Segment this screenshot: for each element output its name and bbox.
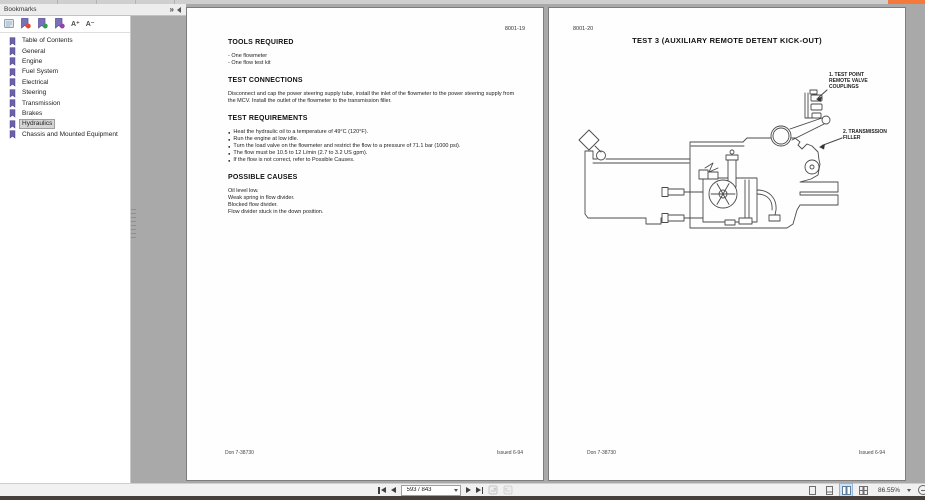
expand-bookmarks-purple-icon[interactable] bbox=[54, 18, 65, 29]
last-page-button[interactable] bbox=[476, 487, 484, 494]
zoom-level: 86.55% bbox=[878, 487, 900, 494]
callout-transmission-filler: 2. TRANSMISSION FILLER bbox=[843, 129, 887, 141]
bookmark-label: Electrical bbox=[20, 79, 50, 87]
bookmark-label: Transmission bbox=[20, 100, 62, 108]
text-line: Blocked flow divider. bbox=[228, 202, 515, 209]
document-area: 8001-19 TOOLS REQUIRED - One flowmeter -… bbox=[130, 4, 925, 483]
bookmark-item-steering[interactable]: Steering bbox=[0, 88, 130, 98]
bookmark-label-selected: Hydraulics bbox=[20, 120, 54, 128]
footer-issue-date: Issued 6-94 bbox=[859, 450, 885, 456]
pdf-reader-window: 8001-19 TOOLS REQUIRED - One flowmeter -… bbox=[0, 0, 925, 500]
document-page-left[interactable]: 8001-19 TOOLS REQUIRED - One flowmeter -… bbox=[186, 7, 544, 481]
bookmark-icon bbox=[9, 120, 16, 129]
tab-divider bbox=[96, 0, 97, 4]
bullet-line: Heat the hydraulic oil to a temperature … bbox=[228, 129, 515, 136]
transmission-diagram bbox=[549, 68, 905, 268]
text-line: Flow divider stuck in the down position. bbox=[228, 209, 515, 216]
bullet-line: Run the engine at low idle. bbox=[228, 136, 515, 143]
section-heading: TEST CONNECTIONS bbox=[228, 77, 515, 85]
zoom-out-icon[interactable] bbox=[918, 485, 925, 495]
page-number: 8001-19 bbox=[505, 26, 525, 32]
text-line: Weak spring in flow divider. bbox=[228, 195, 515, 202]
bookmarks-panel-header: Bookmarks » bbox=[0, 4, 186, 16]
callout-line: COUPLINGS bbox=[829, 84, 868, 90]
page-number-box bbox=[401, 485, 461, 496]
bookmark-item-electrical[interactable]: Electrical bbox=[0, 78, 130, 88]
top-accent-bar bbox=[888, 0, 925, 4]
expand-bookmarks-red-icon[interactable] bbox=[20, 18, 31, 29]
page-title: TEST 3 (AUXILIARY REMOTE DETENT KICK-OUT… bbox=[549, 36, 905, 45]
paragraph: Disconnect and cap the power steering su… bbox=[228, 91, 515, 105]
section-heading: TOOLS REQUIRED bbox=[228, 39, 515, 47]
section-heading: TEST REQUIREMENTS bbox=[228, 115, 515, 123]
bookmark-icon bbox=[9, 89, 16, 98]
view-controls: 86.55% bbox=[805, 484, 925, 496]
bookmark-label: Chassis and Mounted Equipment bbox=[20, 131, 120, 139]
two-page-continuous-view-icon[interactable] bbox=[856, 483, 870, 497]
window-top-strip bbox=[0, 0, 925, 4]
bookmark-item-transmission[interactable]: Transmission bbox=[0, 98, 130, 108]
bookmark-list: Table of Contents General Engine Fuel Sy… bbox=[0, 33, 130, 140]
bookmark-icon bbox=[9, 109, 16, 118]
bookmark-icon bbox=[9, 57, 16, 66]
text-line: Oil level low. bbox=[228, 188, 515, 195]
bookmark-item-hydraulics[interactable]: Hydraulics bbox=[0, 119, 130, 129]
bookmark-icon bbox=[9, 47, 16, 56]
continuous-view-icon[interactable] bbox=[822, 483, 836, 497]
bookmark-icon bbox=[9, 37, 16, 46]
bookmark-icon bbox=[9, 99, 16, 108]
bookmark-item-general[interactable]: General bbox=[0, 46, 130, 56]
text-line: - One flowmeter bbox=[228, 53, 515, 60]
bookmark-label: General bbox=[20, 48, 47, 56]
two-page-view-icon[interactable] bbox=[839, 483, 853, 497]
tab-divider bbox=[135, 0, 136, 4]
page-number-input[interactable] bbox=[402, 486, 453, 495]
panel-options-icon[interactable] bbox=[4, 19, 14, 28]
document-page-right[interactable]: 8001-20 TEST 3 (AUXILIARY REMOTE DETENT … bbox=[548, 7, 906, 481]
bookmark-icon bbox=[9, 78, 16, 87]
panel-collapse-icon[interactable] bbox=[177, 7, 181, 13]
taskbar-edge bbox=[0, 496, 925, 500]
panel-title: Bookmarks bbox=[4, 6, 170, 13]
zoom-dropdown-icon[interactable] bbox=[907, 489, 911, 492]
next-page-button[interactable] bbox=[466, 487, 471, 493]
bookmark-label: Fuel System bbox=[20, 68, 60, 76]
bookmark-item-brakes[interactable]: Brakes bbox=[0, 109, 130, 119]
bookmark-item-chassis-and-mounted-equipment[interactable]: Chassis and Mounted Equipment bbox=[0, 130, 130, 140]
bookmark-label: Table of Contents bbox=[20, 37, 75, 45]
page-body: TOOLS REQUIRED - One flowmeter - One flo… bbox=[228, 39, 515, 216]
panel-menu-icon[interactable]: » bbox=[170, 7, 174, 13]
tab-divider bbox=[57, 0, 58, 4]
callout-line: FILLER bbox=[843, 135, 887, 141]
section-heading: POSSIBLE CAUSES bbox=[228, 174, 515, 182]
bullet-line: Turn the load valve on the flowmeter and… bbox=[228, 143, 515, 150]
page-navigation bbox=[378, 484, 513, 496]
bookmarks-panel: A⁺ A⁻ Table of Contents General Engine F… bbox=[0, 15, 131, 483]
text-line: - One flow test kit bbox=[228, 60, 515, 67]
footer-issue-date: Issued 6-94 bbox=[497, 450, 523, 456]
page-dropdown-icon[interactable] bbox=[454, 489, 458, 492]
previous-page-button[interactable] bbox=[391, 487, 396, 493]
first-page-button[interactable] bbox=[378, 487, 386, 494]
bullet-line: The flow must be 10.5 to 12 L/min (2.7 t… bbox=[228, 150, 515, 157]
bookmark-item-engine[interactable]: Engine bbox=[0, 57, 130, 67]
single-page-view-icon[interactable] bbox=[805, 483, 819, 497]
tab-divider bbox=[174, 0, 175, 4]
font-decrease-button[interactable]: A⁻ bbox=[86, 20, 95, 28]
bookmark-label: Engine bbox=[20, 58, 44, 66]
font-increase-button[interactable]: A⁺ bbox=[71, 20, 80, 28]
panel-splitter-grip[interactable] bbox=[131, 209, 136, 241]
bookmark-icon bbox=[9, 68, 16, 77]
callout-test-point: 1. TEST POINT REMOTE VALVE COUPLINGS bbox=[829, 72, 868, 90]
bookmark-icon bbox=[9, 130, 16, 139]
bookmark-label: Brakes bbox=[20, 110, 44, 118]
footer-print-code: Don 7-38730 bbox=[587, 450, 616, 456]
footer-print-code: Don 7-38730 bbox=[225, 450, 254, 456]
expand-bookmarks-green-icon[interactable] bbox=[37, 18, 48, 29]
bookmarks-toolbar: A⁺ A⁻ bbox=[0, 15, 130, 33]
bookmark-item-fuel-system[interactable]: Fuel System bbox=[0, 67, 130, 77]
bullet-line: If the flow is not correct, refer to Pos… bbox=[228, 157, 515, 164]
next-view-icon[interactable] bbox=[503, 485, 513, 495]
bookmark-item-table-of-contents[interactable]: Table of Contents bbox=[0, 36, 130, 46]
previous-view-icon[interactable] bbox=[488, 485, 498, 495]
page-number: 8001-20 bbox=[573, 26, 593, 32]
bookmark-label: Steering bbox=[20, 89, 48, 97]
status-toolbar: 86.55% bbox=[0, 483, 925, 496]
